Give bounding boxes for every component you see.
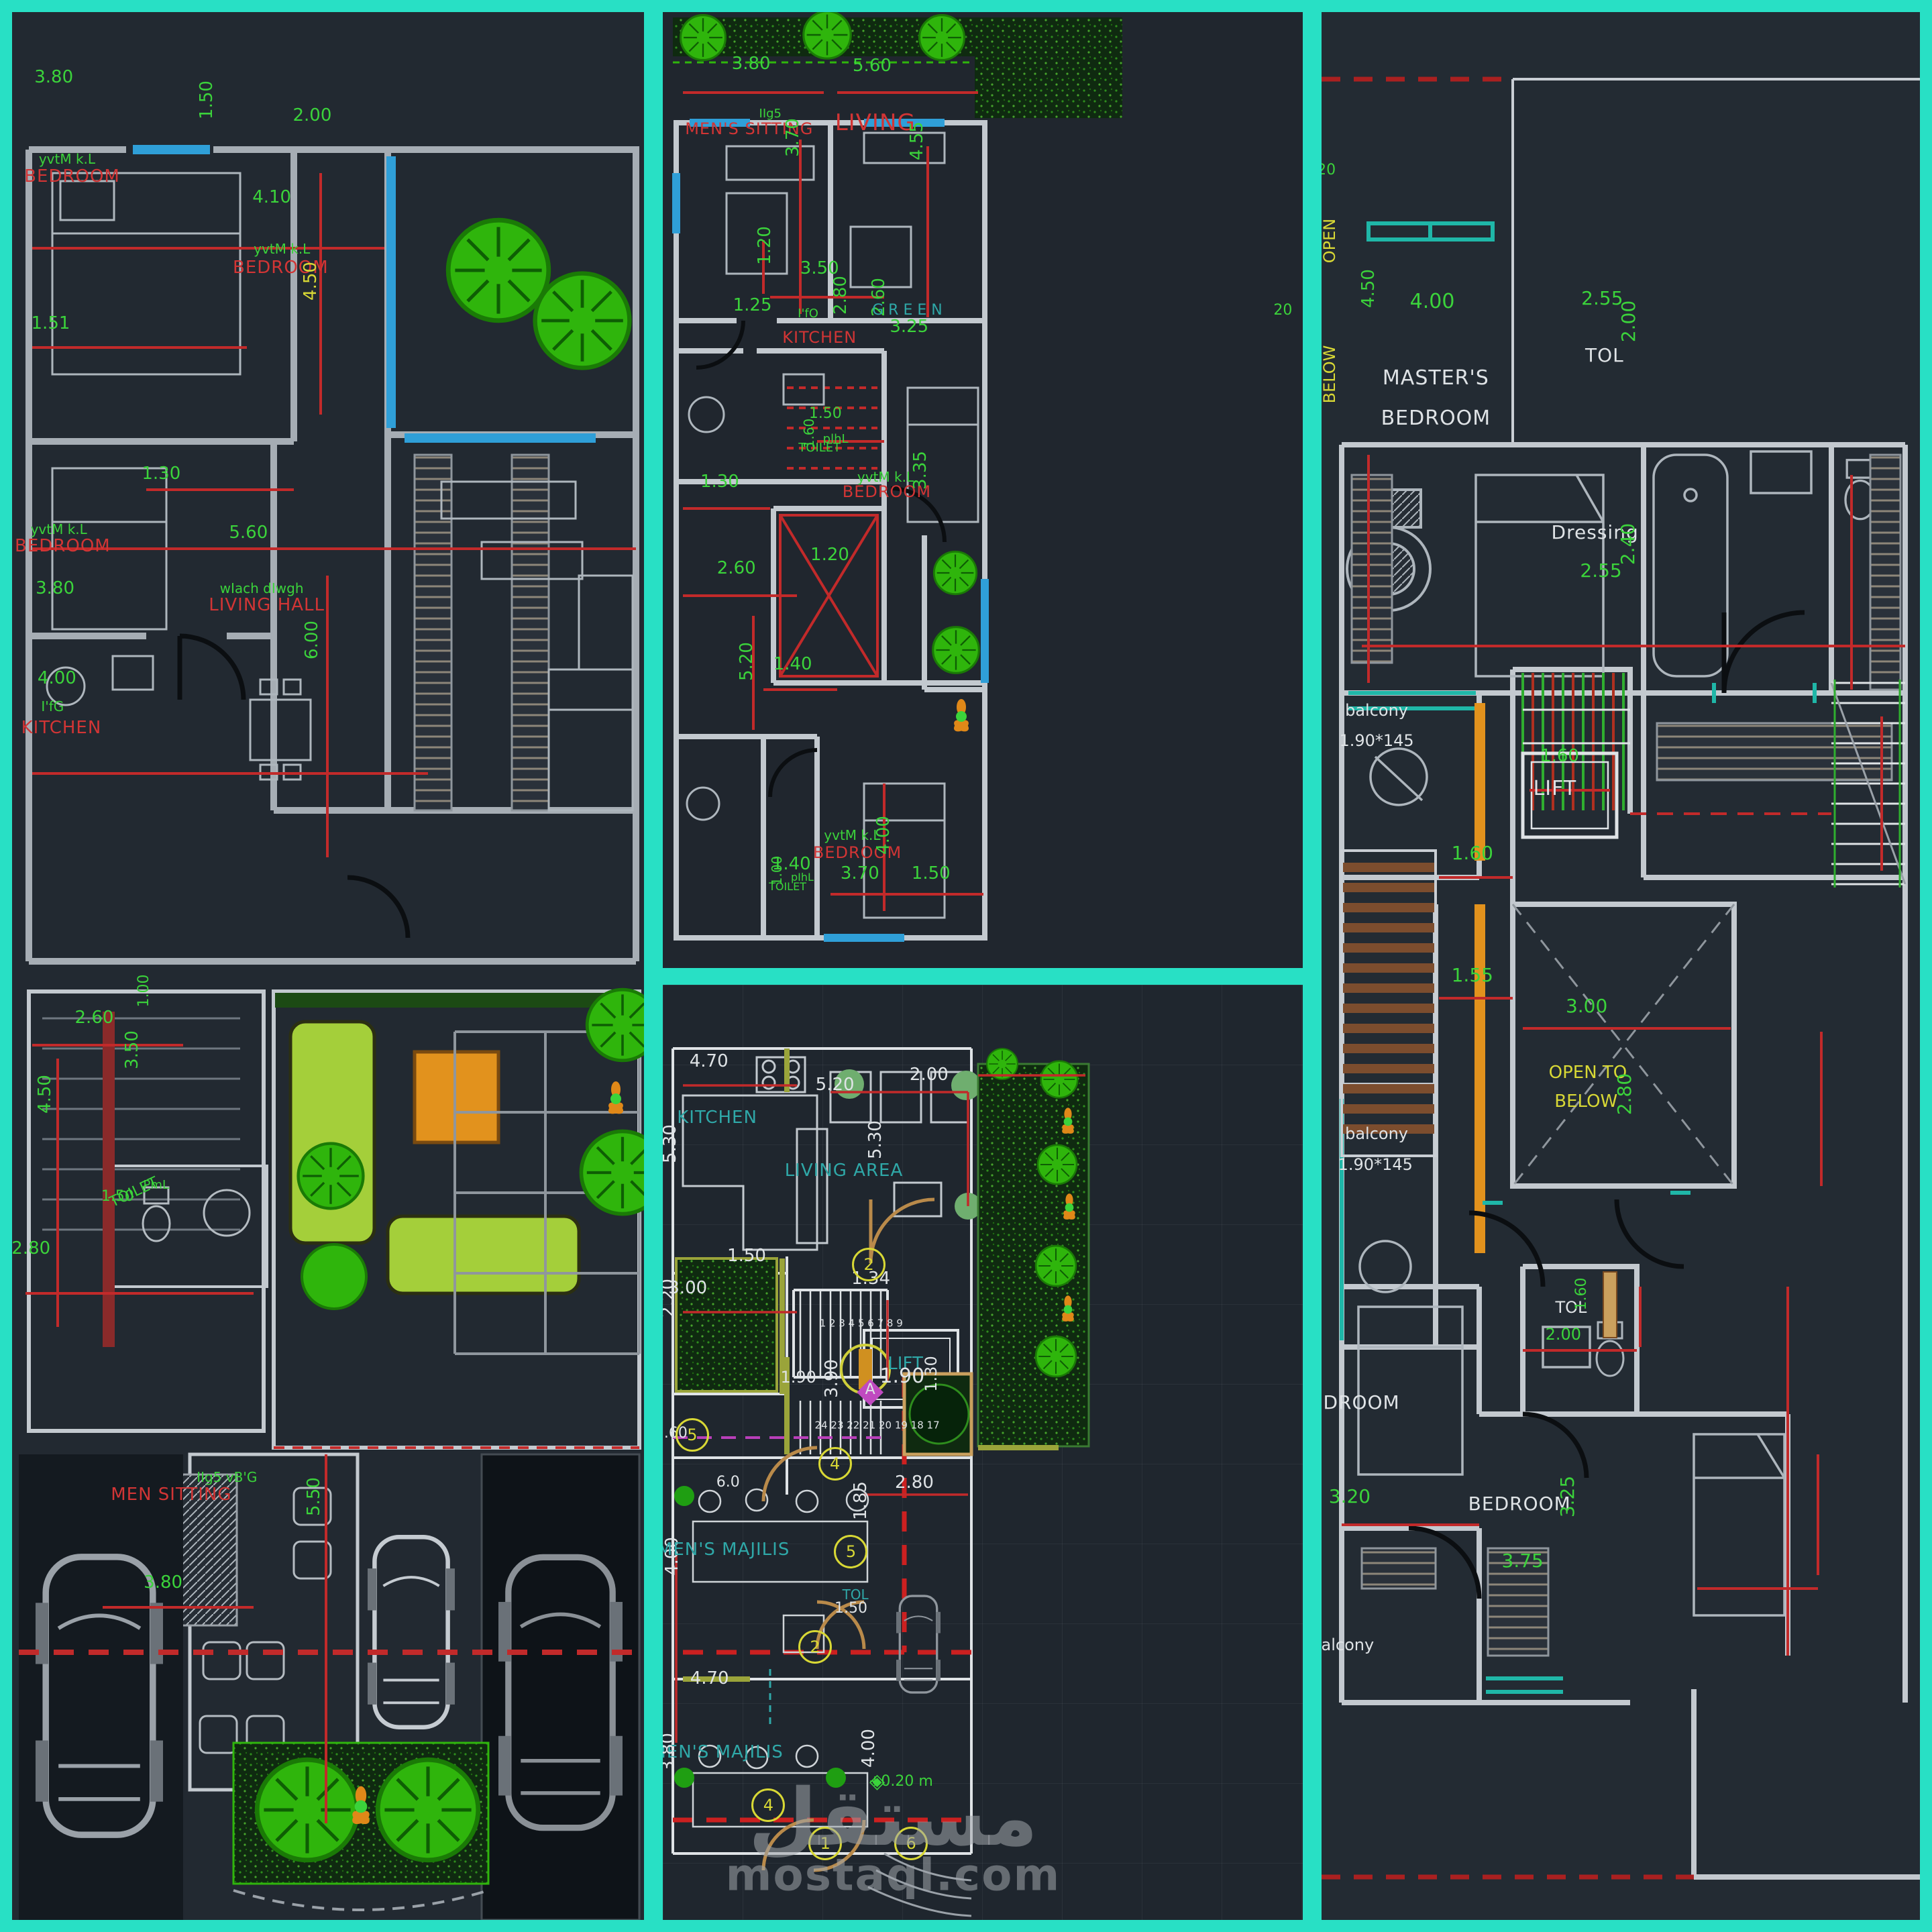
dimension-label: 2.60 — [75, 1009, 114, 1026]
room-label: MASTER'S — [1383, 368, 1489, 388]
dimension-label: 2.80 — [1615, 1073, 1634, 1114]
dimension-label: 3.70 — [841, 865, 879, 882]
dimension-label: balcony — [1345, 702, 1408, 718]
dimension-label: IIg5 vB'G — [197, 1470, 257, 1484]
dimension-label: 2.55 — [1580, 561, 1621, 580]
room-label: MEN'S MAJILIS — [663, 1541, 790, 1558]
dimension-label: 4.10 — [252, 189, 291, 206]
dimension-label: yvtM k.L — [31, 523, 87, 536]
dimension-label: 5.30 — [663, 1124, 679, 1163]
dimension-label: 3.20 — [1329, 1487, 1371, 1506]
room-label: BEDROOM — [1381, 409, 1491, 429]
dimension-label: 1.30 — [700, 473, 739, 490]
watermark-domain: mostaql.com — [726, 1849, 1061, 1901]
dimension-label: 3.50 — [123, 1030, 141, 1069]
dimension-label: 2.20 — [663, 1279, 677, 1318]
room-label: BEDROOM — [15, 537, 111, 555]
dimension-label: balcony — [1322, 1637, 1374, 1653]
dimension-label: 5.20 — [816, 1076, 855, 1093]
dimension-label: yvtM k.L — [824, 828, 880, 842]
dimension-label: 4.55 — [908, 121, 926, 160]
dimension-label: 3.25 — [890, 318, 928, 335]
dimension-label: 5.50 — [305, 1477, 323, 1516]
cad-collage: 3.80yvtM k.LBEDROOM1.502.004.10yvtM k.LB… — [0, 0, 1932, 1932]
dimension-label: 4.00 — [860, 1729, 877, 1768]
dimension-label: 3.80 — [144, 1574, 182, 1591]
dimension-label: G R E E N — [872, 303, 943, 318]
dimension-label: 3.25 — [1558, 1475, 1577, 1517]
dimension-label: 2.80 — [895, 1474, 934, 1491]
dimension-label: 4.50 — [302, 262, 319, 301]
dimension-label: 1.00 — [137, 974, 152, 1007]
dimension-label: 3.70 — [784, 118, 802, 157]
labels-layer-left: 3.80yvtM k.LBEDROOM1.502.004.10yvtM k.LB… — [12, 12, 644, 1920]
dimension-label: BELOW — [1322, 345, 1338, 404]
dimension-label: 1.20 — [810, 546, 849, 563]
dimension-label: yvtM k.L — [254, 242, 310, 256]
room-label: MEN SITTING — [111, 1486, 231, 1503]
dimension-label: 2.00 — [1546, 1326, 1581, 1342]
dimension-label: 1.50 — [727, 1247, 766, 1265]
dimension-label: 4.00 — [875, 816, 892, 855]
dimension-label: 2.00 — [1619, 301, 1638, 342]
stair-numbers: 24 23 22 21 20 19 18 17 — [815, 1420, 940, 1430]
dimension-label: 1.90 — [781, 1369, 816, 1385]
dimension-label: 4.50 — [1360, 269, 1377, 308]
dimension-label: 20 — [1322, 163, 1336, 178]
room-label: TOL — [1585, 346, 1624, 365]
room-label: LIVING — [835, 111, 916, 134]
dimension-label: TOILET — [769, 881, 806, 892]
dimension-label: 3.35 — [912, 451, 929, 490]
room-label: BEDROOM — [24, 168, 120, 185]
dimension-label: TOILET — [798, 442, 841, 454]
dimension-label: 4.50 — [36, 1075, 54, 1114]
dimension-label: 4.70 — [690, 1670, 729, 1687]
dimension-label: 1.30 — [142, 465, 180, 482]
dimension-label: 1.50 — [912, 865, 951, 882]
room-label: LIFT — [1534, 779, 1577, 799]
dimension-label: 4.70 — [690, 1053, 729, 1070]
dimension-label: IIg5 — [759, 108, 782, 120]
dimension-label: 1.25 — [733, 297, 772, 314]
dimension-label: 1.90*145 — [1339, 733, 1413, 749]
stair-numbers: 1 2 3 4 5 6 7 8 9 — [820, 1318, 903, 1328]
door-tag: 2 — [852, 1248, 885, 1281]
door-tag: 5 — [834, 1535, 867, 1568]
room-label: MEN'S MAJILIS — [663, 1743, 784, 1761]
dimension-label: 5.20 — [738, 642, 755, 681]
dimension-label: 1.85 — [852, 1482, 869, 1521]
dimension-label: 1.60 — [1574, 1278, 1589, 1311]
dimension-label: 1.60 — [1452, 844, 1493, 863]
dimension-label: 1.90 — [879, 1366, 924, 1387]
dimension-label: 1.60 — [1540, 747, 1579, 765]
dimension-label: 5.60 — [853, 57, 892, 74]
room-label: BEDROOM — [1468, 1495, 1571, 1513]
panel-floor-plan-middle-top: 3.805.60IIg5MEN'S SITTING3.70LIVING4.551… — [663, 12, 1303, 968]
dimension-label: OPEN — [1322, 219, 1338, 263]
dimension-label: 1.40 — [773, 655, 812, 673]
panel-floor-plan-left: 3.80yvtM k.LBEDROOM1.502.004.10yvtM k.LB… — [12, 12, 644, 1920]
dimension-label: wIach dIwgh — [220, 582, 304, 595]
dimension-label: 1.30 — [923, 1356, 939, 1391]
dimension-label: 6.0 — [716, 1475, 740, 1490]
dimension-label: 1.50 — [835, 1601, 867, 1616]
room-label: KITCHEN — [21, 719, 102, 737]
dimension-label: 3.80 — [34, 68, 73, 86]
dimension-label: 20 — [1273, 303, 1292, 318]
dimension-label: 4.00 — [1410, 292, 1455, 312]
room-label: LIVING AREA — [785, 1162, 904, 1179]
room-label: LIVING HALL — [209, 596, 325, 614]
dimension-label: 2.80 — [832, 276, 849, 315]
door-tag: 2 — [798, 1630, 832, 1664]
dimension-label: 2.00 — [292, 107, 331, 124]
dimension-label: 4.00 — [38, 669, 76, 687]
dimension-label: 3.80 — [732, 55, 771, 72]
labels-layer-middle-top: 3.805.60IIg5MEN'S SITTING3.70LIVING4.551… — [663, 12, 1303, 968]
dimension-label: 5.60 — [229, 524, 268, 541]
dimension-label: 3.80 — [663, 1733, 677, 1772]
dimension-label: 1.50 — [198, 80, 215, 119]
dimension-label: I'fG — [41, 700, 64, 713]
door-tag: 5 — [676, 1418, 709, 1452]
dimension-label: I'fO — [798, 308, 818, 320]
room-label: KITCHEN — [782, 329, 857, 345]
dimension-label: 2.00 — [910, 1066, 949, 1083]
dimension-label: 1.50 — [101, 1189, 134, 1204]
dimension-label: 3.75 — [1502, 1552, 1544, 1570]
section-marker: A — [865, 1383, 875, 1397]
dimension-label: 2.60 — [717, 559, 756, 577]
panel-floor-plan-right: 20OPENBELOW4.504.00MASTER'SBEDROOM2.552.… — [1322, 12, 1920, 1920]
dimension-label: PmL — [144, 1179, 169, 1191]
dimension-label: 1.90*145 — [1338, 1157, 1413, 1173]
dimension-label: BELOW — [1554, 1093, 1617, 1110]
dimension-label: yvtM k.L — [857, 470, 914, 484]
dimension-label: 1.20 — [756, 226, 773, 265]
dimension-label: yvtM k.L — [39, 152, 95, 166]
dimension-label: 5.30 — [867, 1120, 884, 1159]
dimension-label: 1.51 — [32, 315, 70, 332]
panel-floor-plan-middle-bottom: 4.70KITCHEN5.305.202.00LIVING AREA5.301.… — [663, 985, 1303, 1920]
door-tag: 4 — [818, 1447, 852, 1481]
dimension-label: 2.80 — [12, 1240, 50, 1257]
dimension-label: 2.40 — [1619, 523, 1638, 565]
dimension-label: 3.90 — [823, 1359, 841, 1398]
dimension-label: 3.00 — [1566, 997, 1607, 1016]
dimension-label: 3.80 — [36, 580, 74, 597]
dimension-label: 3.50 — [800, 260, 839, 277]
labels-layer-right: 20OPENBELOW4.504.00MASTER'SBEDROOM2.552.… — [1322, 12, 1920, 1920]
dimension-label: 1.55 — [1452, 966, 1493, 985]
room-label: BEDROOM — [1322, 1393, 1400, 1412]
dimension-label: balcony — [1345, 1126, 1408, 1142]
dimension-label: 6.00 — [303, 621, 321, 659]
room-label: KITCHEN — [677, 1109, 757, 1126]
